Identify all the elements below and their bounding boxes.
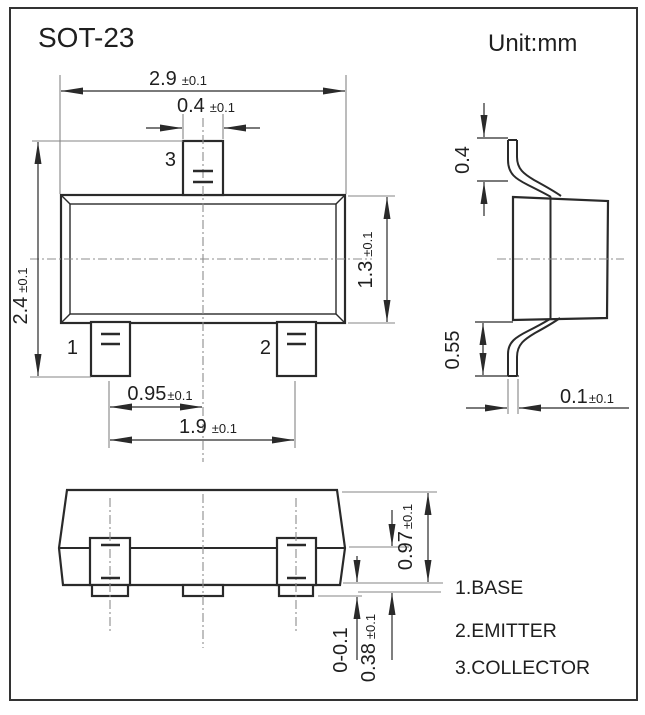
side-view: 0.4 0.55 0.1±0.1 bbox=[442, 103, 629, 414]
pin3-label: 3 bbox=[165, 149, 176, 171]
pin2-lead bbox=[277, 322, 316, 376]
front-view: 0.97±0.1 0.38±0.1 0-0.1 bbox=[59, 490, 443, 682]
dim-standoff: 0-0.1 bbox=[330, 627, 352, 673]
top-view: 3 1 2 2.9±0.1 0.4±0.1 2.4±0.1 1.3±0.1 0.… bbox=[10, 68, 395, 462]
legend-item-emitter: 2.EMITTER bbox=[455, 620, 557, 642]
pin1-label: 1 bbox=[67, 337, 78, 359]
unit-label: Unit:mm bbox=[488, 30, 577, 57]
pin2-label: 2 bbox=[260, 337, 271, 359]
dim-lead-thickness: 0.1±0.1 bbox=[560, 386, 614, 408]
package-drawing-svg: SOT-23 Unit:mm 3 1 2 2.9±0.1 bbox=[0, 0, 645, 715]
drawing-page: SOT-23 Unit:mm 3 1 2 2.9±0.1 bbox=[0, 0, 645, 715]
dim-upper-lead-height: 0.4 bbox=[452, 146, 474, 174]
dim-overall-width: 2.9±0.1 bbox=[149, 68, 207, 90]
legend-item-collector: 3.COLLECTOR bbox=[455, 657, 590, 679]
pin1-lead bbox=[91, 322, 130, 376]
upper-lead-inner-edge bbox=[517, 140, 561, 196]
legend-item-base: 1.BASE bbox=[455, 577, 523, 599]
lower-lead-inner-edge bbox=[517, 318, 560, 376]
dim-body-height: 1.3±0.1 bbox=[355, 231, 377, 288]
pin-legend: 1.BASE 2.EMITTER 3.COLLECTOR bbox=[455, 577, 590, 679]
dim-lead-pitch-half: 0.95±0.1 bbox=[127, 383, 192, 405]
dim-overall-height: 2.4±0.1 bbox=[10, 267, 32, 324]
page-title: SOT-23 bbox=[38, 22, 134, 53]
dim-total-height: 0.97±0.1 bbox=[395, 504, 417, 570]
dim-lower-lead-height: 0.55 bbox=[442, 331, 464, 370]
dim-lead-width: 0.4±0.1 bbox=[177, 95, 235, 117]
dim-lead-pitch: 1.9±0.1 bbox=[179, 416, 237, 438]
upper-lead-outer-edge bbox=[508, 140, 551, 197]
dim-lead-height: 0.38±0.1 bbox=[358, 614, 380, 682]
